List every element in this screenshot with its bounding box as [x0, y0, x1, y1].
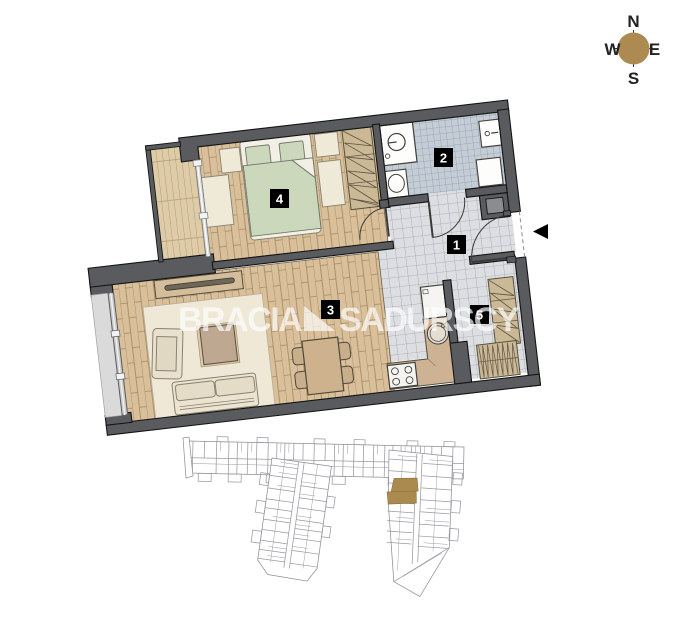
- svg-text:1: 1: [453, 238, 460, 253]
- svg-text:SADURSCY: SADURSCY: [339, 301, 520, 339]
- svg-text:E: E: [649, 40, 660, 59]
- svg-text:3: 3: [327, 303, 334, 318]
- svg-text:W: W: [604, 40, 621, 59]
- svg-text:4: 4: [276, 192, 284, 207]
- svg-text:BRACIA: BRACIA: [178, 301, 302, 339]
- svg-text:2: 2: [440, 151, 447, 166]
- svg-text:S: S: [628, 69, 639, 88]
- svg-text:N: N: [627, 12, 639, 31]
